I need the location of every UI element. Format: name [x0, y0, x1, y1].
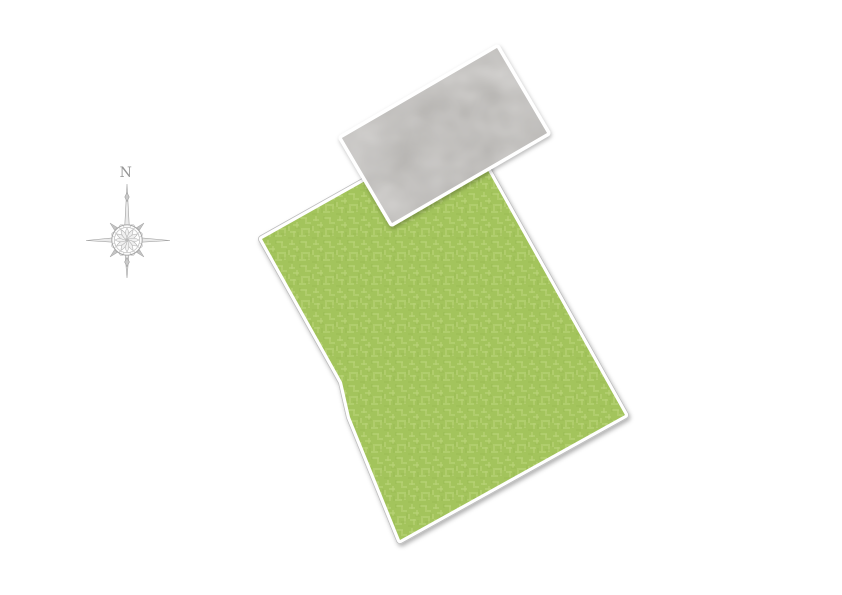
site-plan-svg: N — [0, 0, 842, 595]
compass-needle-north — [125, 184, 130, 227]
compass-rosette-center — [125, 238, 128, 241]
compass-needle-east — [139, 238, 170, 243]
site-plan-canvas: N — [0, 0, 842, 595]
compass-north-label: N — [120, 165, 133, 181]
compass-rose: N — [86, 165, 170, 278]
compass-needle-north-bulge — [125, 193, 129, 202]
compass-needle-west — [86, 238, 115, 243]
